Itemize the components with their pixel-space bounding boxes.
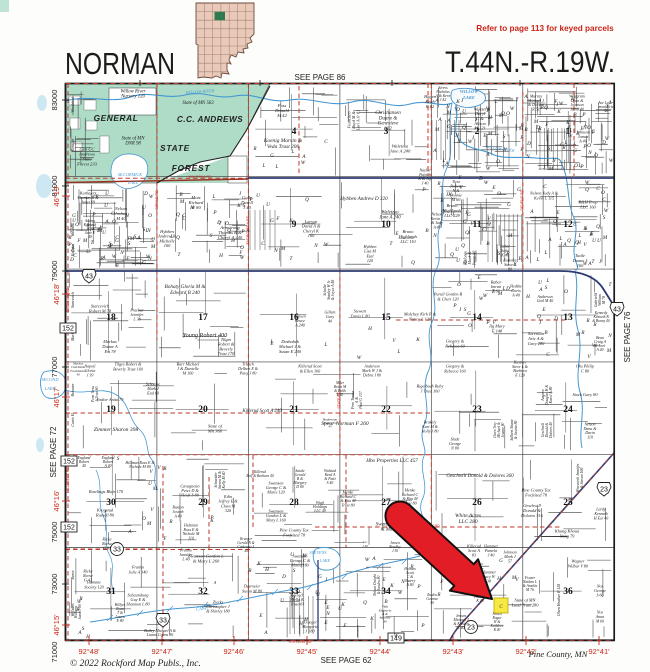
svg-text:G: G	[72, 213, 76, 219]
svg-text:320: 320	[225, 508, 232, 513]
svg-text:W: W	[583, 261, 588, 267]
svg-text:N: N	[119, 250, 124, 256]
svg-text:& Sandra 80: & Sandra 80	[377, 576, 381, 595]
svg-text:Young Robert 400: Young Robert 400	[183, 332, 228, 339]
svg-text:L: L	[397, 349, 401, 355]
svg-text:LAKE: LAKE	[462, 95, 475, 100]
svg-text:A 40: A 40	[104, 464, 112, 468]
svg-text:77000: 77000	[50, 357, 59, 378]
svg-text:K: K	[556, 109, 561, 115]
svg-text:K: K	[236, 203, 241, 209]
svg-text:M: M	[575, 332, 581, 338]
svg-text:E 80: E 80	[115, 619, 123, 623]
svg-text:92°44': 92°44'	[369, 647, 391, 656]
svg-text:WILLOW: WILLOW	[460, 89, 479, 94]
svg-text:G: G	[573, 148, 577, 154]
svg-text:G: G	[507, 202, 511, 208]
svg-text:O: O	[225, 221, 229, 227]
svg-text:G: G	[318, 574, 322, 580]
svg-text:L: L	[275, 164, 279, 170]
svg-text:DEVENS RD: DEVENS RD	[520, 189, 524, 210]
svg-text:G: G	[447, 124, 451, 130]
svg-text:G: G	[115, 238, 119, 244]
svg-text:H: H	[264, 567, 269, 573]
svg-text:Gary 280: Gary 280	[528, 341, 546, 346]
svg-text:G: G	[560, 142, 564, 148]
svg-text:S 60: S 60	[597, 592, 604, 597]
svg-text:Dolores 316: Dolores 316	[520, 513, 543, 518]
svg-text:M: M	[82, 238, 88, 244]
svg-text:L: L	[270, 339, 274, 345]
svg-text:E 148: E 148	[491, 328, 503, 333]
svg-text:Trust 170: Trust 170	[218, 351, 236, 356]
svg-text:L: L	[564, 140, 568, 146]
svg-text:Wilbur V 80: Wilbur V 80	[568, 563, 589, 568]
svg-text:83000: 83000	[50, 90, 59, 111]
svg-text:40: 40	[328, 318, 332, 323]
svg-text:D: D	[295, 589, 300, 595]
svg-text:M: M	[548, 166, 554, 172]
svg-text:G: G	[499, 558, 503, 564]
svg-text:W: W	[486, 166, 491, 172]
svg-text:O: O	[457, 282, 461, 288]
svg-text:Curtis H: Curtis H	[71, 413, 75, 426]
svg-text:S: S	[293, 568, 296, 574]
svg-text:C: C	[596, 186, 600, 192]
svg-text:L: L	[536, 257, 540, 263]
svg-text:CIRCLE RD: CIRCLE RD	[155, 190, 159, 210]
svg-text:L: L	[544, 250, 548, 256]
svg-text:M: M	[152, 486, 158, 492]
svg-text:Stock Gary 80: Stock Gary 80	[572, 392, 598, 397]
svg-text:32: 32	[198, 587, 208, 597]
svg-text:K: K	[415, 337, 420, 343]
svg-text:Land Trust 280: Land Trust 280	[511, 602, 540, 607]
svg-text:H: H	[298, 621, 303, 627]
svg-text:D: D	[535, 125, 540, 131]
svg-text:W: W	[592, 343, 597, 349]
svg-text:LAKE: LAKE	[127, 180, 139, 185]
svg-text:& Shirley 180: & Shirley 180	[206, 609, 230, 614]
svg-text:30: 30	[106, 498, 116, 508]
svg-text:92°41': 92°41'	[588, 647, 610, 656]
svg-text:Julie A 140: Julie A 140	[129, 569, 149, 574]
svg-text:Debra J 80: Debra J 80	[362, 372, 381, 377]
svg-text:EVERGREEN RD: EVERGREEN RD	[246, 215, 250, 244]
svg-text:S: S	[143, 227, 146, 233]
svg-text:D 80: D 80	[295, 485, 304, 489]
svg-text:W: W	[149, 194, 154, 200]
svg-text:Q: Q	[176, 212, 180, 218]
svg-text:83: 83	[472, 553, 476, 558]
svg-text:O: O	[240, 245, 244, 251]
svg-text:46°19': 46°19'	[52, 185, 61, 207]
svg-text:92°47': 92°47'	[151, 647, 173, 656]
svg-text:D: D	[526, 141, 531, 147]
svg-text:79000: 79000	[50, 261, 59, 282]
svg-text:Lori A Jr 81: Lori A Jr 81	[356, 110, 361, 131]
svg-text:Starcevich: Starcevich	[71, 292, 75, 308]
svg-text:Endter Anita 79: Endter Anita 79	[96, 397, 125, 402]
svg-text:10: 10	[381, 220, 391, 230]
svg-text:W: W	[398, 590, 403, 596]
svg-text:D: D	[553, 316, 558, 322]
svg-text:M: M	[280, 246, 286, 252]
svg-text:L: L	[494, 99, 498, 105]
svg-text:M 60: M 60	[595, 618, 604, 623]
svg-text:Genevieve: Genevieve	[378, 122, 400, 127]
svg-text:14: 14	[472, 313, 482, 323]
svg-text:Nursery 120: Nursery 120	[120, 95, 145, 100]
svg-text:L: L	[212, 194, 216, 200]
svg-text:Veda Trust 200: Veda Trust 200	[267, 144, 300, 150]
svg-text:22: 22	[381, 405, 391, 415]
svg-text:N: N	[551, 158, 556, 164]
svg-text:W: W	[357, 355, 362, 361]
svg-text:75000: 75000	[50, 522, 59, 543]
svg-text:L: L	[442, 158, 446, 164]
svg-text:W: W	[77, 599, 82, 605]
svg-text:Etal 60: Etal 60	[146, 390, 159, 395]
svg-text:STATE: STATE	[160, 143, 190, 153]
svg-text:O: O	[142, 516, 146, 522]
svg-text:13: 13	[563, 313, 573, 323]
svg-text:& Mary L 260: & Mary L 260	[193, 559, 220, 564]
svg-text:K: K	[288, 218, 293, 224]
svg-text:Q: Q	[544, 105, 548, 111]
svg-text:Paul G 157: Paul G 157	[359, 390, 363, 410]
svg-text:73000: 73000	[50, 574, 59, 595]
svg-text:LAKE: LAKE	[319, 558, 331, 563]
svg-text:O: O	[594, 153, 598, 159]
svg-text:K: K	[209, 518, 214, 524]
svg-text:W: W	[609, 158, 614, 164]
svg-text:21: 21	[289, 405, 299, 415]
svg-text:Nichole M 80: Nichole M 80	[128, 464, 151, 469]
svg-text:160: 160	[308, 233, 315, 238]
svg-text:Jane A 240: Jane A 240	[379, 216, 401, 221]
svg-text:G: G	[142, 260, 146, 266]
svg-text:23: 23	[472, 405, 482, 415]
svg-text:Nancy L 120: Nancy L 120	[408, 316, 432, 321]
svg-text:M: M	[518, 126, 524, 132]
svg-text:C: C	[602, 197, 606, 203]
svg-text:W: W	[365, 557, 370, 563]
svg-text:SEE PAGE 72: SEE PAGE 72	[49, 426, 58, 478]
svg-text:46°16': 46°16'	[52, 490, 61, 512]
svg-text:J 40: J 40	[488, 552, 495, 557]
svg-text:L: L	[569, 128, 573, 134]
svg-text:K 40: K 40	[475, 599, 483, 603]
svg-text:Forest 233: Forest 233	[76, 162, 98, 167]
svg-text:Q: Q	[176, 235, 180, 241]
svg-text:S: S	[545, 285, 548, 291]
svg-text:92°48': 92°48'	[78, 647, 100, 656]
svg-text:W: W	[479, 296, 484, 302]
svg-text:15: 15	[381, 313, 391, 323]
svg-text:Q: Q	[411, 260, 415, 266]
svg-text:C 80: C 80	[581, 368, 590, 373]
svg-text:W: W	[510, 106, 515, 112]
svg-text:E 120: E 120	[514, 373, 524, 378]
svg-text:Yvette 60: Yvette 60	[471, 251, 476, 265]
svg-text:40: 40	[82, 464, 86, 468]
svg-text:M: M	[602, 235, 608, 241]
svg-text:Edward B 240: Edward B 240	[169, 289, 200, 296]
svg-text:O: O	[587, 125, 591, 131]
svg-text:G: G	[467, 212, 471, 218]
svg-text:WALESKA RD: WALESKA RD	[188, 175, 212, 179]
svg-text:K: K	[256, 561, 261, 567]
svg-text:N: N	[273, 248, 278, 254]
svg-text:N: N	[432, 233, 437, 239]
svg-text:29: 29	[198, 498, 208, 508]
svg-text:M: M	[179, 199, 185, 205]
svg-text:152: 152	[63, 525, 75, 532]
svg-text:© 2022 Rockford Map Publs., I: © 2022 Rockford Map Publs., Inc.	[70, 658, 201, 669]
svg-text:LLC 110: LLC 110	[399, 239, 416, 244]
svg-text:Rolf & Barbara 40: Rolf & Barbara 40	[245, 474, 273, 478]
svg-text:Gail M 40: Gail M 40	[537, 298, 553, 303]
svg-text:S: S	[109, 241, 112, 247]
svg-text:SEE PAGE 86: SEE PAGE 86	[295, 73, 347, 82]
svg-text:McCORMICK: McCORMICK	[117, 172, 142, 177]
svg-text:Pine County, MN: Pine County, MN	[528, 649, 589, 659]
svg-text:43: 43	[85, 273, 93, 280]
svg-text:J 180: J 180	[305, 629, 315, 634]
svg-text:40: 40	[88, 235, 92, 239]
svg-text:W: W	[394, 633, 399, 639]
svg-text:L: L	[291, 149, 295, 155]
svg-text:Travis L 80: Travis L 80	[350, 313, 370, 318]
svg-text:Rawlings Blair 170: Rawlings Blair 170	[88, 489, 124, 494]
svg-text:H: H	[367, 326, 372, 332]
svg-text:W: W	[559, 101, 564, 107]
svg-text:L: L	[324, 342, 328, 348]
svg-text:Forfeited 78: Forfeited 78	[282, 532, 306, 537]
svg-text:D: D	[478, 176, 483, 182]
svg-text:H: H	[525, 294, 530, 300]
svg-text:Duane &: Duane &	[378, 116, 398, 121]
svg-text:W: W	[324, 242, 329, 248]
svg-text:Rebecca 60: Rebecca 60	[444, 343, 465, 348]
svg-text:C: C	[324, 139, 328, 145]
svg-text:& Jasnia 80: & Jasnia 80	[514, 421, 518, 440]
svg-text:L 40: L 40	[457, 626, 465, 630]
svg-text:W: W	[112, 254, 117, 260]
svg-text:H: H	[303, 617, 308, 623]
svg-text:160: 160	[164, 243, 171, 248]
svg-text:Marie 180: Marie 180	[290, 563, 309, 568]
svg-text:11: 11	[473, 220, 482, 230]
svg-text:Q: Q	[465, 230, 469, 236]
svg-text:152: 152	[62, 326, 74, 333]
svg-text:O: O	[456, 107, 460, 113]
svg-text:BRENNAN RD: BRENNAN RD	[66, 288, 70, 312]
svg-text:S: S	[548, 146, 551, 152]
svg-text:A 40: A 40	[596, 348, 604, 352]
svg-text:C.C. ANDREWS: C.C. ANDREWS	[177, 114, 243, 124]
svg-text:M: M	[150, 244, 156, 250]
svg-text:O: O	[496, 159, 500, 165]
svg-text:Killerud Scott A 240: Killerud Scott A 240	[241, 409, 282, 414]
svg-text:H: H	[230, 238, 235, 244]
svg-text:Q: Q	[450, 252, 454, 258]
svg-text:S: S	[134, 234, 137, 240]
svg-text:M 121: M 121	[473, 126, 486, 131]
svg-text:M: M	[487, 131, 493, 137]
svg-text:Jeanne 80: Jeanne 80	[501, 422, 505, 437]
svg-text:HILLCREST RD: HILLCREST RD	[66, 467, 70, 493]
svg-text:46°15': 46°15'	[52, 614, 61, 636]
svg-text:H: H	[576, 240, 581, 246]
svg-text:A 40: A 40	[511, 293, 521, 298]
svg-text:Q: Q	[585, 187, 589, 193]
svg-text:Q: Q	[461, 243, 465, 249]
svg-text:Russell 80: Russell 80	[95, 512, 115, 517]
svg-text:A 40: A 40	[173, 513, 181, 518]
svg-text:Trust 43: Trust 43	[290, 601, 303, 606]
svg-text:S: S	[210, 233, 213, 239]
svg-text:28: 28	[289, 498, 299, 508]
svg-text:M 60: M 60	[451, 197, 462, 202]
svg-text:20: 20	[198, 405, 208, 415]
svg-text:92°43': 92°43'	[442, 647, 464, 656]
svg-text:C: C	[543, 184, 547, 190]
svg-text:G 81: G 81	[103, 546, 111, 551]
svg-text:LLC 280: LLC 280	[457, 519, 477, 525]
svg-text:O: O	[497, 191, 501, 197]
svg-text:C: C	[482, 227, 486, 233]
svg-text:Q: Q	[596, 224, 600, 230]
svg-text:H: H	[124, 213, 129, 219]
svg-text:M: M	[146, 521, 152, 527]
svg-text:Reese: Reese	[71, 570, 75, 580]
svg-text:M 70: M 70	[602, 296, 606, 305]
svg-text:K: K	[389, 583, 394, 589]
svg-text:Jane A 240: Jane A 240	[390, 149, 411, 154]
svg-text:S: S	[498, 251, 501, 257]
svg-text:K: K	[512, 262, 517, 268]
svg-text:24: 24	[563, 405, 573, 415]
svg-text:FOREST: FOREST	[172, 163, 211, 173]
svg-text:Neng 79: Neng 79	[559, 533, 576, 538]
svg-text:36: 36	[563, 587, 573, 597]
svg-text:M 160: M 160	[182, 371, 195, 376]
svg-text:Beverly Trust 160: Beverly Trust 160	[113, 366, 144, 371]
svg-text:Olsen Heather R 120: Olsen Heather R 120	[557, 584, 561, 616]
svg-text:Reissner: Reissner	[71, 383, 75, 398]
svg-text:W: W	[484, 180, 489, 186]
svg-text:Mary L 160: Mary L 160	[265, 518, 287, 523]
svg-text:Holly J 80: Holly J 80	[421, 428, 439, 433]
svg-text:Q: Q	[227, 228, 231, 234]
svg-text:& Steven 100: & Steven 100	[580, 468, 584, 489]
svg-text:O: O	[601, 190, 605, 196]
svg-text:O: O	[111, 211, 115, 217]
svg-text:26: 26	[472, 498, 482, 508]
svg-text:J Trust 160: J Trust 160	[421, 388, 441, 393]
svg-text:STEVENS RD: STEVENS RD	[289, 640, 312, 644]
svg-text:A Trust 60: A Trust 60	[95, 386, 99, 402]
svg-text:Luann Capra 80: Luann Capra 80	[146, 632, 173, 637]
svg-text:GENERAL: GENERAL	[94, 113, 139, 123]
svg-text:A 40: A 40	[432, 225, 440, 230]
svg-text:O: O	[587, 143, 591, 149]
svg-text:J 30: J 30	[392, 549, 398, 553]
svg-text:O: O	[148, 213, 152, 219]
svg-text:A 240: A 240	[294, 323, 306, 328]
svg-text:R 51: R 51	[531, 107, 539, 112]
svg-text:SEE PAGE 76: SEE PAGE 76	[623, 311, 632, 363]
svg-text:N: N	[502, 147, 507, 153]
svg-text:C: C	[573, 222, 577, 228]
svg-text:O: O	[574, 163, 578, 169]
svg-text:40: 40	[383, 619, 387, 623]
svg-text:S: S	[82, 626, 85, 632]
svg-text:S: S	[585, 226, 588, 232]
svg-text:SECOND: SECOND	[41, 377, 59, 382]
svg-text:Patsy J 80: Patsy J 80	[239, 370, 257, 375]
svg-text:SEE PAGE 62: SEE PAGE 62	[321, 656, 373, 665]
svg-text:K: K	[340, 602, 345, 608]
svg-text:J 40: J 40	[422, 181, 429, 186]
svg-text:R 40: R 40	[493, 628, 501, 632]
svg-text:92°45': 92°45'	[296, 647, 318, 656]
svg-text:A 80: A 80	[406, 583, 414, 587]
svg-text:K: K	[455, 99, 460, 105]
svg-text:S: S	[603, 215, 606, 221]
svg-text:W: W	[240, 255, 245, 261]
svg-text:Q: Q	[363, 600, 367, 606]
svg-text:B 82: B 82	[426, 104, 435, 109]
svg-text:Dolores 40: Dolores 40	[549, 422, 553, 439]
svg-text:Jama 40: Jama 40	[570, 107, 584, 112]
svg-text:D: D	[69, 257, 74, 263]
svg-text:110: 110	[188, 536, 194, 541]
svg-text:N: N	[147, 256, 152, 262]
svg-text:N: N	[456, 139, 461, 145]
svg-text:L: L	[578, 233, 582, 239]
svg-text:G: G	[463, 219, 467, 225]
svg-text:19: 19	[106, 405, 116, 415]
svg-text:Kevin L 115: Kevin L 115	[533, 195, 554, 200]
svg-text:G: G	[270, 153, 274, 159]
svg-text:Q: Q	[291, 595, 295, 601]
svg-text:Q: Q	[487, 221, 491, 227]
svg-text:N: N	[400, 579, 405, 585]
svg-text:17: 17	[198, 313, 208, 323]
svg-text:Shannon L 80: Shannon L 80	[126, 602, 150, 607]
svg-text:LLC 160: LLC 160	[579, 204, 596, 209]
svg-text:Forfeited 78: Forfeited 78	[524, 492, 548, 497]
svg-text:Q: Q	[567, 238, 571, 244]
svg-text:46°18': 46°18'	[52, 283, 61, 305]
svg-text:H Esr 40: H Esr 40	[593, 515, 608, 520]
svg-text:92°46': 92°46'	[223, 647, 245, 656]
svg-text:33: 33	[159, 617, 167, 624]
svg-text:K: K	[565, 120, 570, 126]
svg-text:Susan E 240: Susan E 240	[279, 349, 302, 354]
svg-text:40: 40	[244, 549, 248, 553]
svg-text:38: 38	[487, 578, 491, 583]
svg-text:23: 23	[600, 486, 608, 493]
svg-text:25: 25	[563, 498, 573, 508]
svg-text:M: M	[507, 233, 513, 239]
svg-text:Hybben Andrew D 320: Hybben Andrew D 320	[339, 196, 388, 202]
svg-text:STATE RD: STATE RD	[337, 391, 341, 409]
svg-text:Society 120: Society 120	[84, 584, 104, 589]
